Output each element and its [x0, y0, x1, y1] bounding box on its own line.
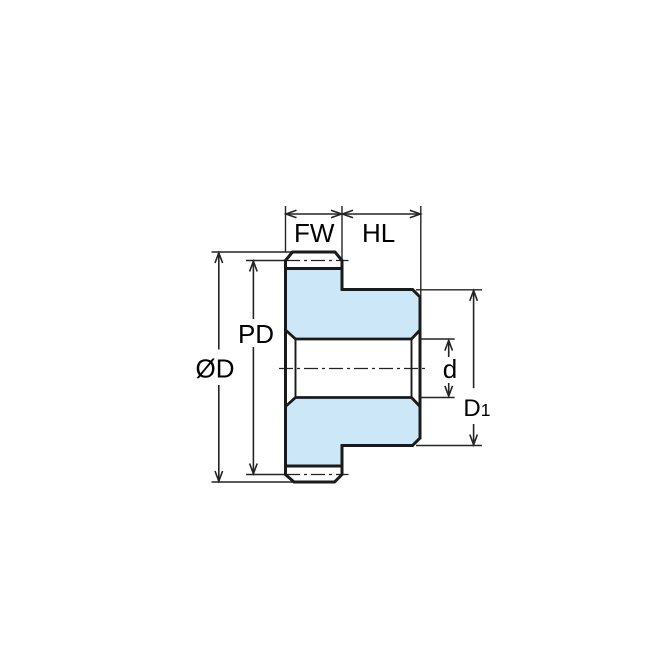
- svg-text:HL: HL: [362, 218, 395, 248]
- svg-text:D1: D1: [463, 395, 490, 422]
- svg-text:PD: PD: [238, 319, 274, 349]
- svg-text:ØD: ØD: [196, 353, 235, 383]
- svg-text:FW: FW: [294, 218, 335, 248]
- svg-text:d: d: [443, 354, 457, 384]
